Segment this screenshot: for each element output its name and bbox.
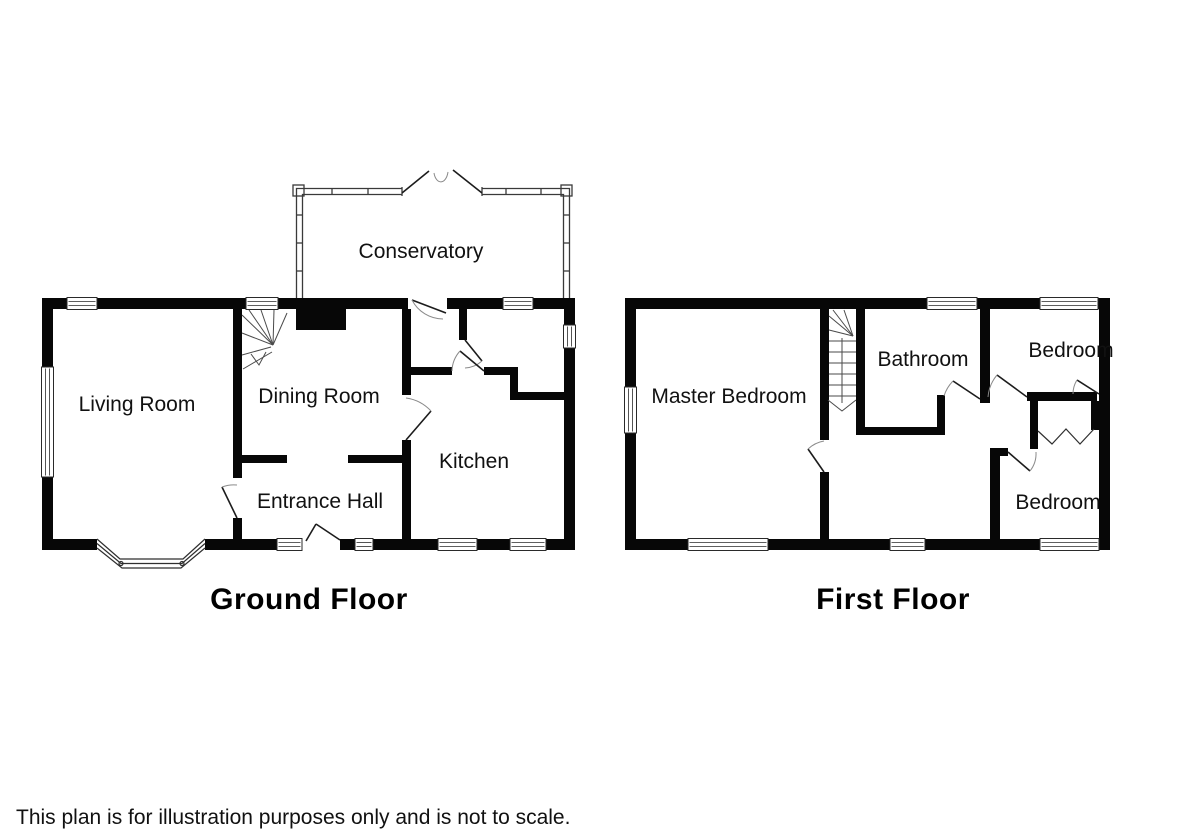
bifold-doors	[1038, 429, 1094, 444]
ground-floor-plan: Conservatory Living Room Dining Room Ent…	[42, 170, 576, 568]
room-label-bathroom: Bathroom	[877, 348, 968, 371]
front-door	[306, 524, 340, 541]
window	[1040, 539, 1099, 551]
window	[503, 298, 533, 310]
door-swing	[1008, 452, 1036, 471]
room-label-bedroom-bottom: Bedroom	[1015, 491, 1100, 514]
window	[246, 298, 278, 310]
door-swing	[988, 375, 1027, 397]
window	[355, 539, 373, 551]
window	[67, 298, 97, 310]
room-label-bedroom-top: Bedroom	[1028, 339, 1113, 362]
door-swing	[1073, 380, 1099, 394]
room-label-entrance-hall: Entrance Hall	[257, 490, 383, 513]
room-label-conservatory: Conservatory	[359, 240, 484, 263]
window	[510, 539, 546, 551]
window	[277, 539, 302, 551]
first-doors	[808, 375, 1099, 472]
room-label-kitchen: Kitchen	[439, 450, 509, 473]
room-label-dining-room: Dining Room	[258, 385, 379, 408]
disclaimer-text: This plan is for illustration purposes o…	[16, 806, 570, 830]
french-doors	[402, 170, 482, 193]
window	[564, 325, 576, 348]
door-swing	[406, 398, 431, 440]
door-swing	[412, 300, 446, 319]
door-swing	[808, 441, 824, 472]
first-floor-title: First Floor	[743, 583, 1043, 617]
window	[688, 539, 768, 551]
floorplan-page: Conservatory Living Room Dining Room Ent…	[0, 0, 1200, 840]
window	[890, 539, 925, 551]
door-swing	[222, 485, 237, 518]
chimney-breast	[296, 309, 346, 330]
window	[1040, 298, 1098, 310]
first-floor-plan: Master Bedroom Bathroom Bedroom Bedroom	[625, 298, 1114, 551]
window	[42, 367, 54, 477]
room-label-master-bedroom: Master Bedroom	[651, 385, 806, 408]
window	[438, 539, 477, 551]
stairs-first	[828, 310, 856, 411]
door-swing	[465, 340, 482, 368]
bay-window	[97, 539, 205, 568]
window	[625, 387, 637, 433]
stairs-ground	[242, 310, 287, 369]
door-swing	[944, 381, 980, 399]
ground-floor-title: Ground Floor	[159, 583, 459, 617]
room-label-living-room: Living Room	[79, 393, 196, 416]
window	[927, 298, 977, 310]
floorplan-drawing: Conservatory Living Room Dining Room Ent…	[0, 0, 1200, 840]
